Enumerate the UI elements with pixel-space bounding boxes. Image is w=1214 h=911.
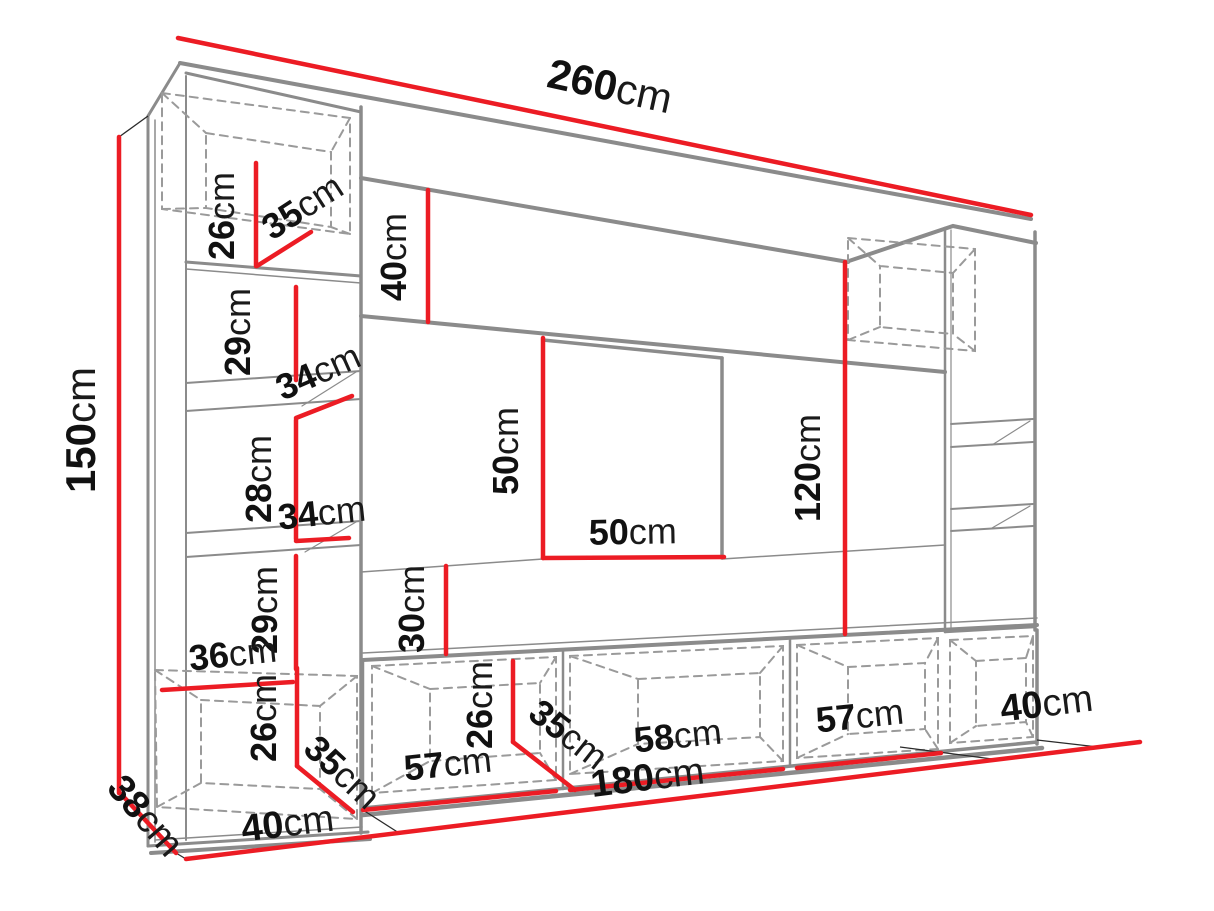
left-column-outer-edge [148,63,180,846]
right-top-cube-top-edges [846,226,1036,262]
right-column-shelf-1-side [992,421,1030,445]
right-column-shelf-2-side [992,506,1030,528]
label-overall-width: 260cm [543,49,676,122]
label-tv-niche-width: 50cm [588,510,677,553]
stand-top-back-edge [363,618,1037,653]
back-panel-divider-right [722,545,945,559]
leader-height-top [119,116,148,137]
label-left-bottom-cabinet-top: 36cm [187,629,279,679]
label-tv-niche-height: 50cm [485,407,526,495]
dimension-diagram: 260cm 150cm 38cm 40cm 180cm 40cm 26cm 35… [0,0,1214,911]
right-column-shelf-2 [951,504,1033,531]
label-left-shelf-gap-1: 29cm [217,288,258,376]
label-base-right-width: 40cm [998,678,1095,731]
label-top-panel-height: 40cm [373,213,414,301]
label-right-column-height: 120cm [787,414,828,522]
label-left-shelf-gap-2: 28cm [238,435,279,523]
label-back-panel-lower: 30cm [391,565,432,653]
back-panel-divider-left [361,559,543,572]
dim-line-left-shelf-depth-2 [296,538,349,541]
left-top-cube-bottom-edge-2 [186,269,361,283]
leader-base-far-right [1037,740,1098,747]
top-panel-front-bottom-edge [361,316,945,372]
top-panel-front-top-edge [361,178,848,262]
wall-unit-drawing: 260cm 150cm 38cm 40cm 180cm 40cm 26cm 35… [0,0,1214,911]
dim-line-tv-niche-width [543,557,724,558]
label-left-shelf-depth-2: 34cm [276,488,368,538]
label-overall-height: 150cm [57,367,104,493]
left-top-cube-bottom-edge [186,262,361,276]
label-left-top-cabinet-height: 26cm [201,172,242,260]
dimension-labels: 260cm 150cm 38cm 40cm 180cm 40cm 26cm 35… [57,49,1095,865]
label-stand-cab1-width: 57cm [402,739,494,789]
label-stand-height: 26cm [459,661,500,749]
label-left-bottom-cabinet-height: 26cm [243,674,284,762]
label-stand-cab3-width: 57cm [814,691,906,741]
right-column-shelf-1 [951,419,1033,447]
label-stand-cab2-width: 58cm [632,711,724,761]
